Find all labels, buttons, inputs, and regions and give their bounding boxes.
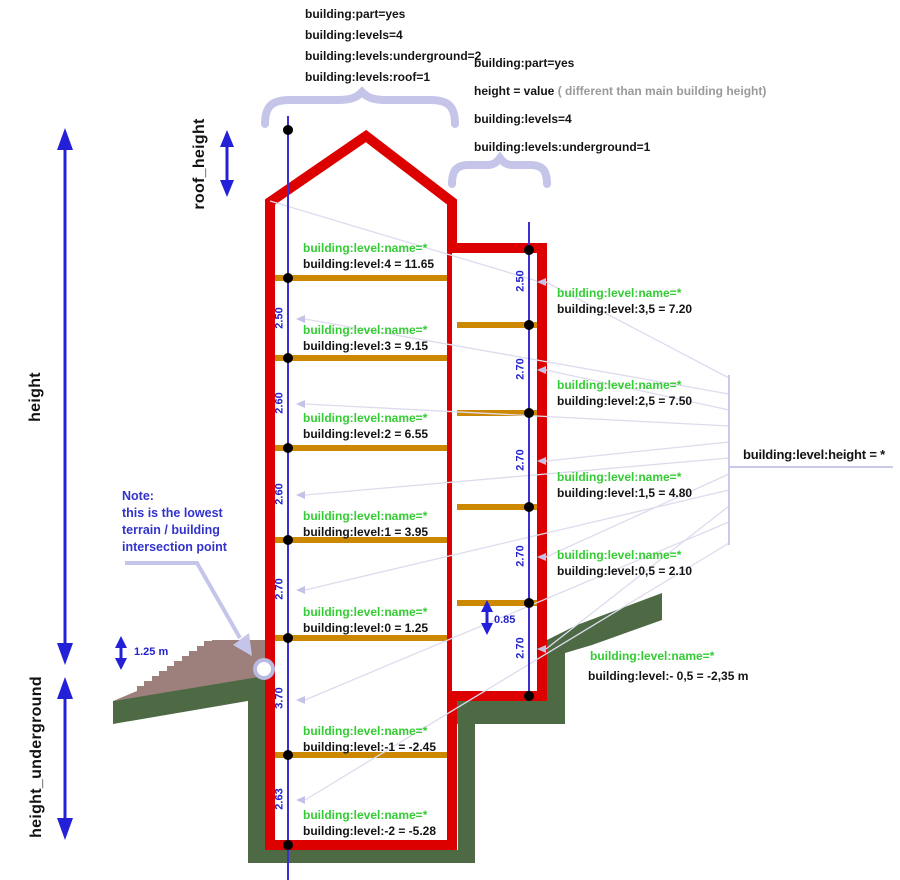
building-levels-diagram: building:part=yes building:levels=4 buil… [0, 0, 900, 880]
main-floor-level-label: building:level:0 = 1.25 [303, 622, 428, 634]
tag-line: building:levels:roof=1 [305, 70, 481, 84]
part-dim-label: 2.50 [516, 270, 527, 291]
terrain-step-label: 1.25 m [134, 647, 168, 658]
main-floor-level-label: building:level:3 = 9.15 [303, 340, 428, 352]
main-building-tags: building:part=yes building:levels=4 buil… [305, 7, 481, 91]
main-floor-name-label: building:level:name=* [303, 606, 427, 618]
part-floor-level-label: building:level:2,5 = 7.50 [557, 395, 692, 407]
main-floor-name-label: building:level:name=* [303, 725, 427, 737]
part-floor-level-label: building:level:1,5 = 4.80 [557, 487, 692, 499]
tag-line: height = value ( different than main bui… [474, 84, 766, 98]
note-line: terrain / building [122, 522, 227, 539]
main-floor-name-label: building:level:name=* [303, 324, 427, 336]
main-dim-label: 2.60 [275, 483, 286, 504]
intersection-point-marker [255, 660, 273, 678]
height-tag-note: ( different than main building height) [554, 84, 766, 98]
tag-line: building:levels=4 [474, 112, 766, 126]
roof-height-label: roof_height [192, 118, 208, 209]
main-floor-name-label: building:level:name=* [303, 242, 427, 254]
note-line: this is the lowest [122, 505, 227, 522]
part-floor-name-label: building:level:name=* [590, 650, 714, 662]
main-dim-label: 2.50 [275, 307, 286, 328]
part-building-tags: building:part=yes height = value ( diffe… [474, 56, 766, 168]
main-dim-label: 2.63 [275, 788, 286, 809]
part-floor-level-label: building:level:3,5 = 7.20 [557, 303, 692, 315]
part-floor-name-label: building:level:name=* [557, 471, 681, 483]
part-floor-name-label: building:level:name=* [557, 287, 681, 299]
part-floor-level-label: building:level:0,5 = 2.10 [557, 565, 692, 577]
tag-line: building:levels:underground=2 [305, 49, 481, 63]
main-dim-label: 3.70 [275, 687, 286, 708]
tag-line: building:part=yes [474, 56, 766, 70]
level-height-label: building:level:height = * [743, 448, 885, 461]
part-floor-name-label: building:level:name=* [557, 379, 681, 391]
main-floor-level-label: building:level:2 = 6.55 [303, 428, 428, 440]
main-floor-level-label: building:level:-2 = -5.28 [303, 825, 436, 837]
tag-line: building:part=yes [305, 7, 481, 21]
part-dim-label: 2.70 [516, 545, 527, 566]
height-label: height [28, 372, 44, 422]
note-line: Note: [122, 488, 227, 505]
part-floor-level-label: building:level:- 0,5 = -2,35 m [588, 670, 748, 682]
part-dim-label: 2.70 [516, 637, 527, 658]
main-floor-name-label: building:level:name=* [303, 510, 427, 522]
main-floor-level-label: building:level:4 = 11.65 [303, 258, 434, 270]
note-text: Note: this is the lowest terrain / build… [122, 488, 227, 556]
height-tag: height = value [474, 84, 554, 98]
main-floor-name-label: building:level:name=* [303, 412, 427, 424]
main-building-brace [265, 92, 455, 124]
part-offset-label: 0.85 [494, 615, 515, 626]
part-dim-label: 2.70 [516, 449, 527, 470]
height-underground-label: height_underground [29, 676, 45, 838]
main-floor-level-label: building:level:-1 = -2.45 [303, 741, 436, 753]
main-dim-label: 2.60 [275, 392, 286, 413]
main-floor-level-label: building:level:1 = 3.95 [303, 526, 428, 538]
tag-line: building:levels:underground=1 [474, 140, 766, 154]
main-dim-label: 2.70 [275, 578, 286, 599]
part-floor-name-label: building:level:name=* [557, 549, 681, 561]
main-floor-name-label: building:level:name=* [303, 809, 427, 821]
tag-line: building:levels=4 [305, 28, 481, 42]
note-line: intersection point [122, 539, 227, 556]
part-dim-label: 2.70 [516, 358, 527, 379]
